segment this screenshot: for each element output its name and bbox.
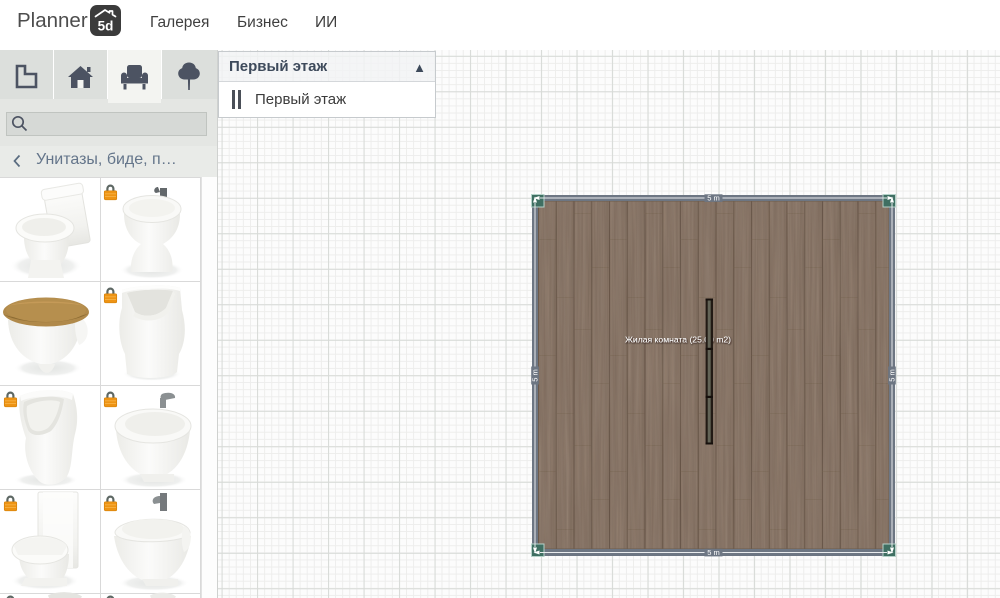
svg-text:5 m: 5 m <box>707 548 720 557</box>
svg-text:5d: 5d <box>98 19 114 34</box>
svg-text:5 m: 5 m <box>707 194 720 203</box>
svg-text:5 m: 5 m <box>888 369 897 382</box>
svg-text:5 m: 5 m <box>531 369 540 382</box>
svg-text:Жилая комната (25.00 m2): Жилая комната (25.00 m2) <box>625 335 731 345</box>
